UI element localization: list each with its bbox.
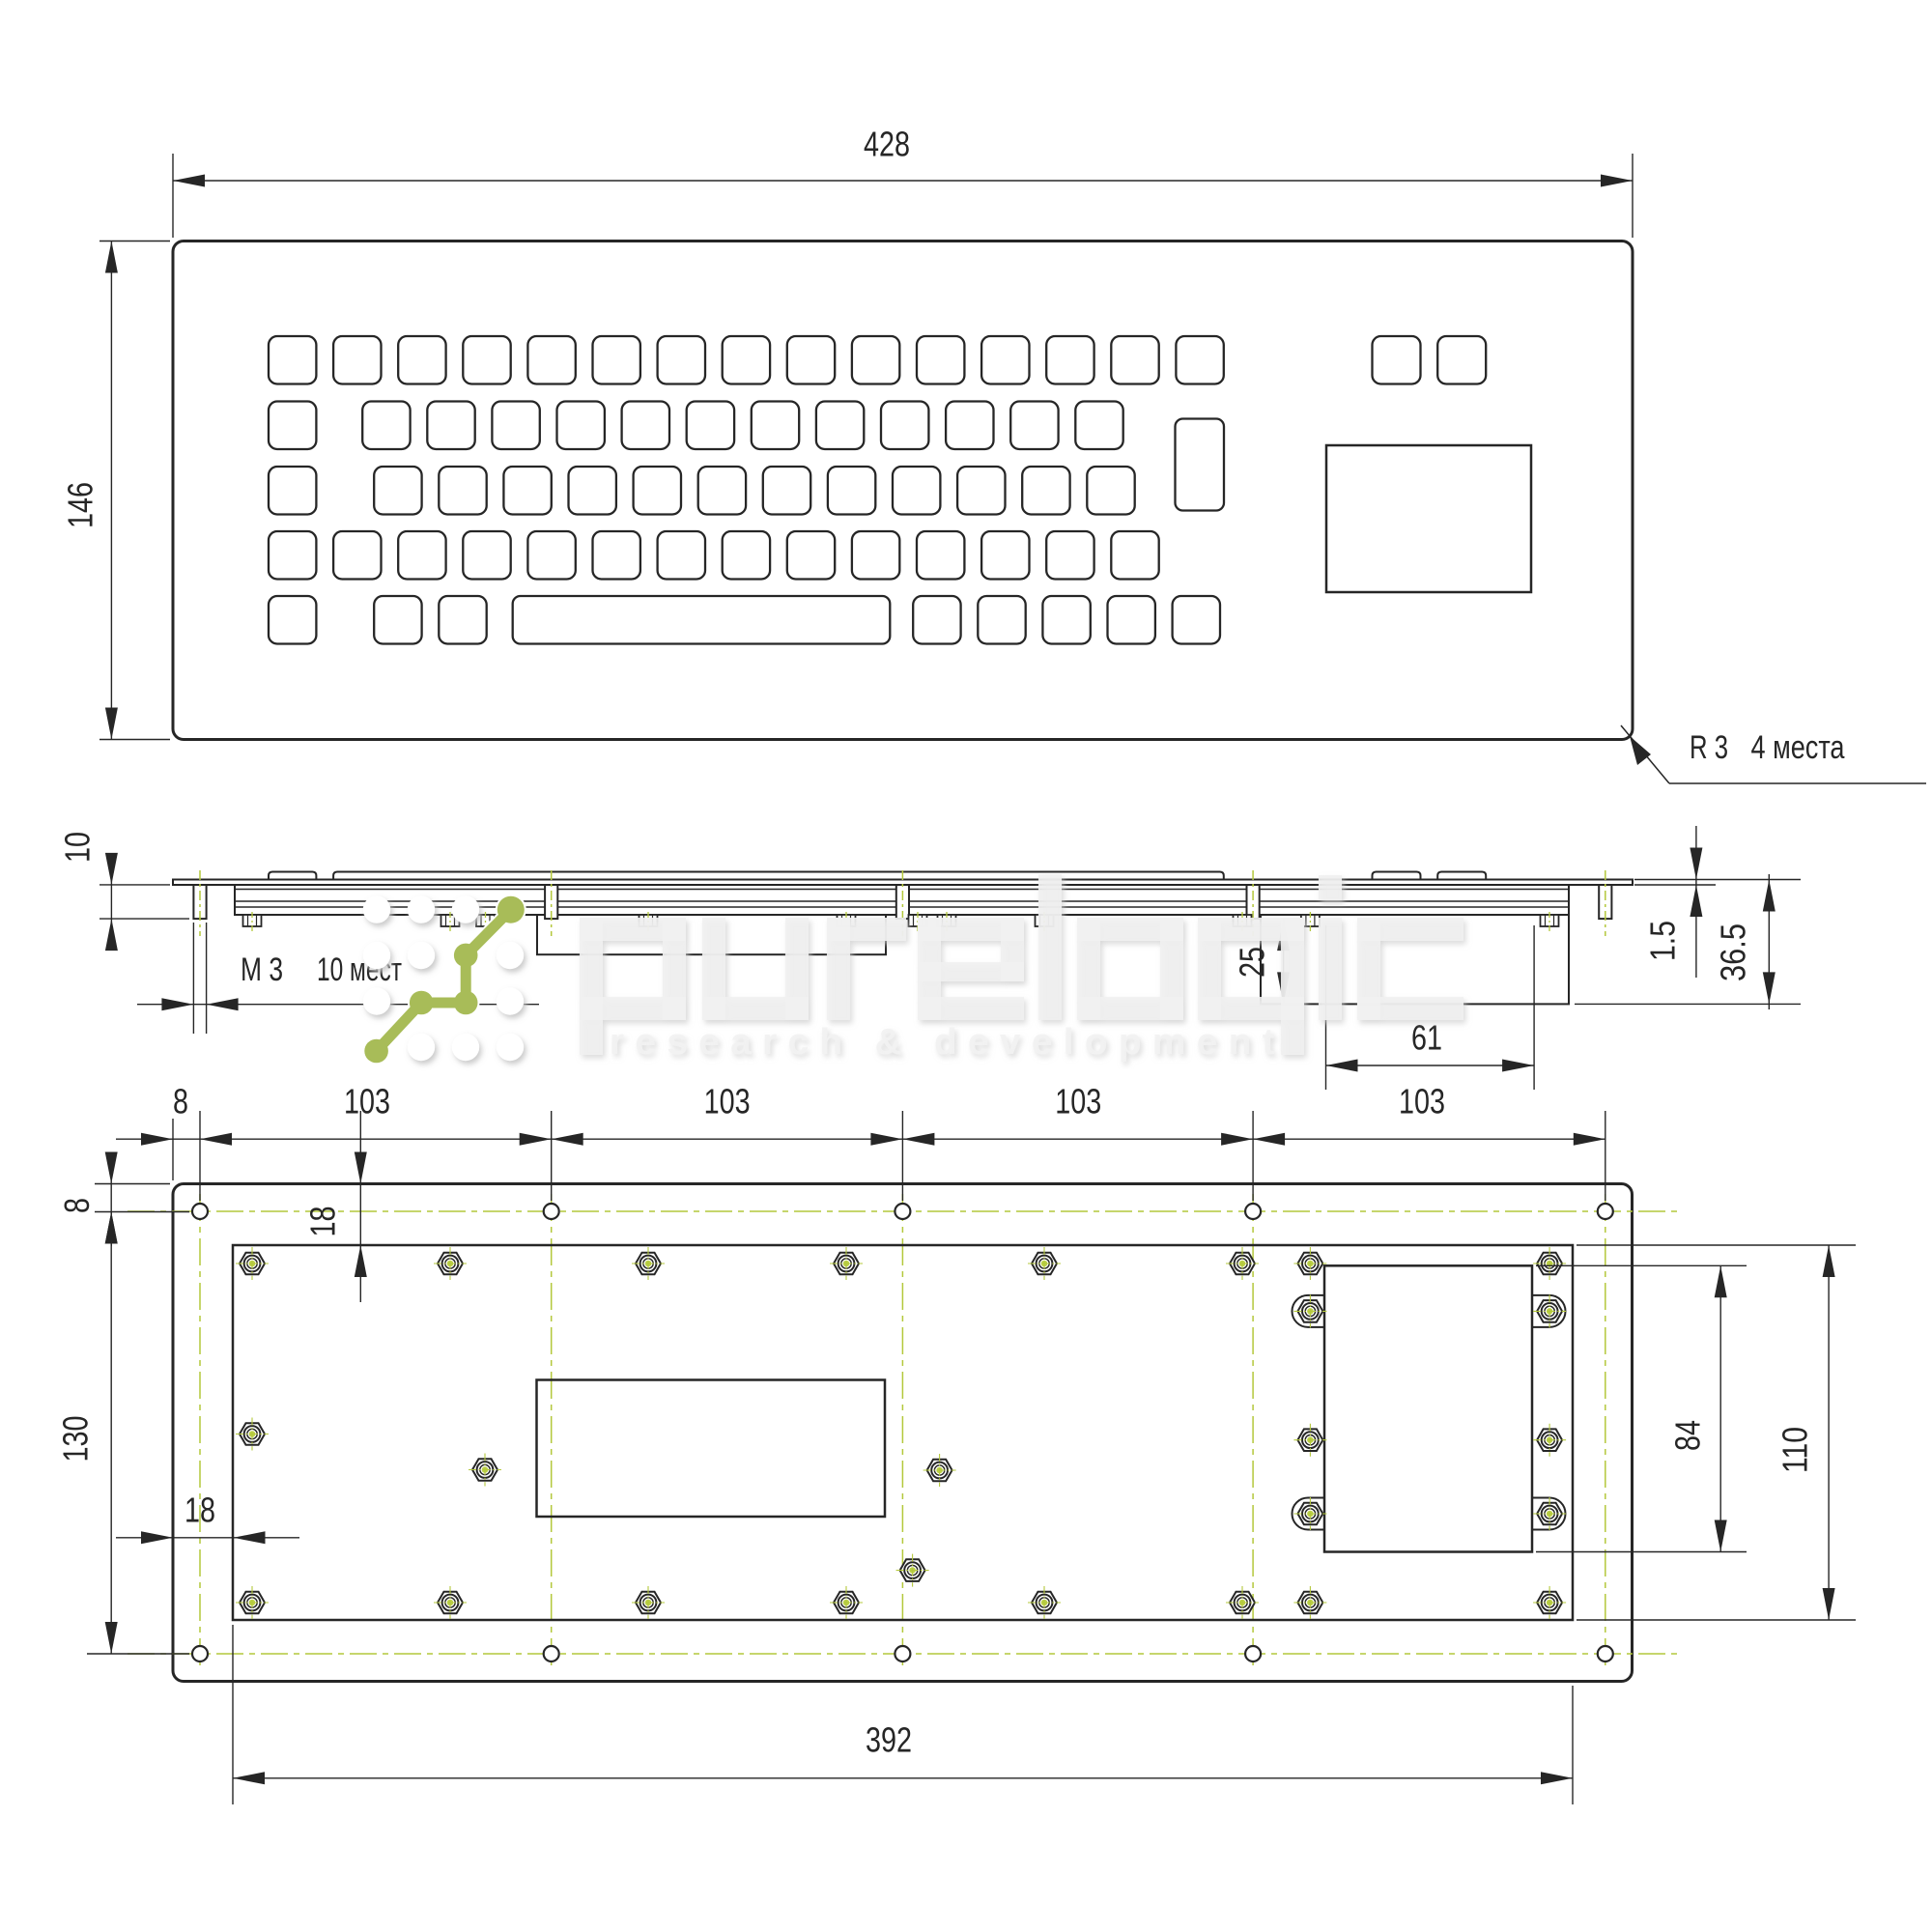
svg-text:research & development: research & development [610, 1022, 1286, 1063]
svg-text:110: 110 [1776, 1427, 1815, 1473]
svg-text:M 3: M 3 [241, 951, 283, 988]
svg-text:25: 25 [1233, 947, 1272, 978]
svg-text:146: 146 [61, 482, 100, 528]
svg-text:18: 18 [185, 1491, 215, 1530]
svg-text:18: 18 [303, 1207, 343, 1237]
svg-text:103: 103 [1399, 1082, 1445, 1122]
svg-text:8: 8 [173, 1082, 188, 1122]
svg-text:103: 103 [344, 1082, 390, 1122]
svg-text:61: 61 [1411, 1018, 1442, 1058]
svg-text:103: 103 [1055, 1082, 1101, 1122]
svg-text:36.5: 36.5 [1714, 923, 1753, 981]
svg-text:R 3: R 3 [1690, 729, 1728, 766]
svg-text:4 места: 4 места [1751, 729, 1845, 766]
svg-text:1.5: 1.5 [1643, 921, 1683, 961]
svg-text:130: 130 [56, 1416, 96, 1462]
svg-text:103: 103 [704, 1082, 751, 1122]
svg-text:10: 10 [58, 832, 98, 863]
svg-text:392: 392 [866, 1720, 912, 1760]
svg-text:428: 428 [864, 125, 910, 164]
svg-text:84: 84 [1668, 1420, 1708, 1451]
svg-text:8: 8 [57, 1198, 97, 1213]
